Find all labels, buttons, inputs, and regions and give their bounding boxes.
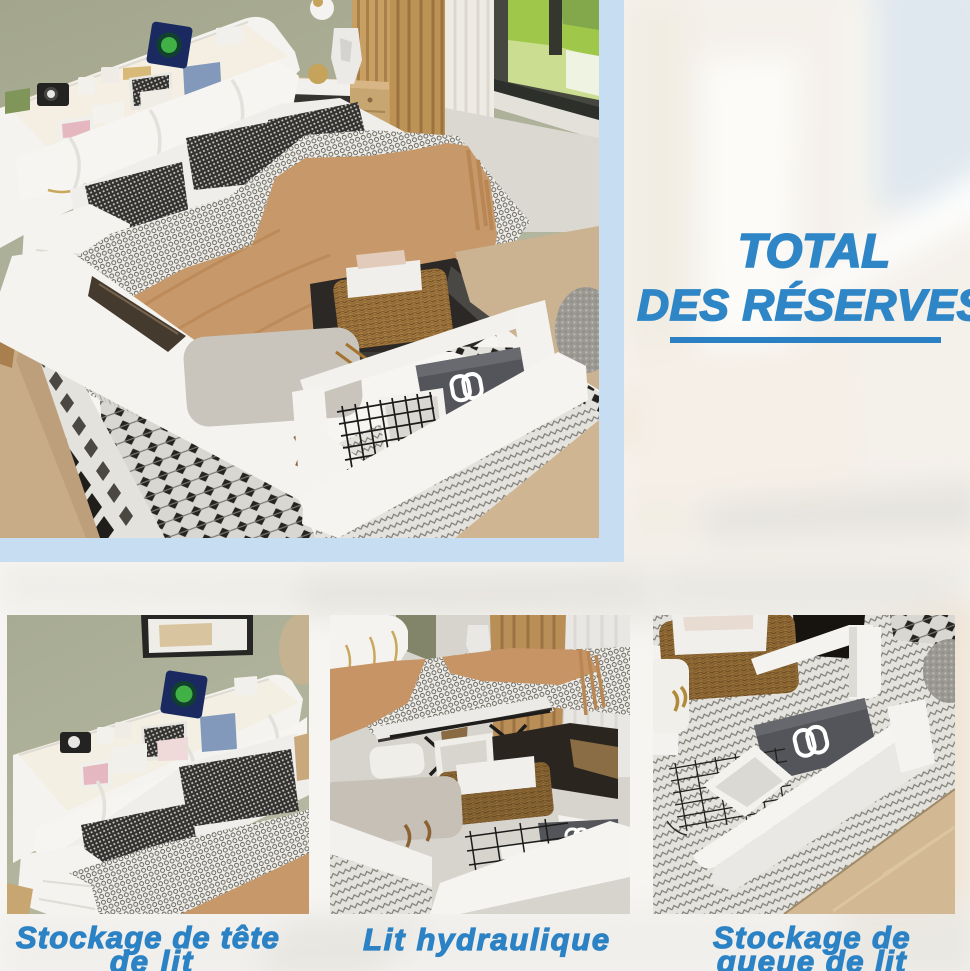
svg-text:DES RÉSERVES: DES RÉSERVES <box>637 280 970 330</box>
svg-text:queue de lit: queue de lit <box>717 944 907 971</box>
svg-text:TOTAL: TOTAL <box>738 224 890 277</box>
svg-text:Lit hydraulique: Lit hydraulique <box>363 922 611 957</box>
svg-text:de lit: de lit <box>110 944 194 971</box>
